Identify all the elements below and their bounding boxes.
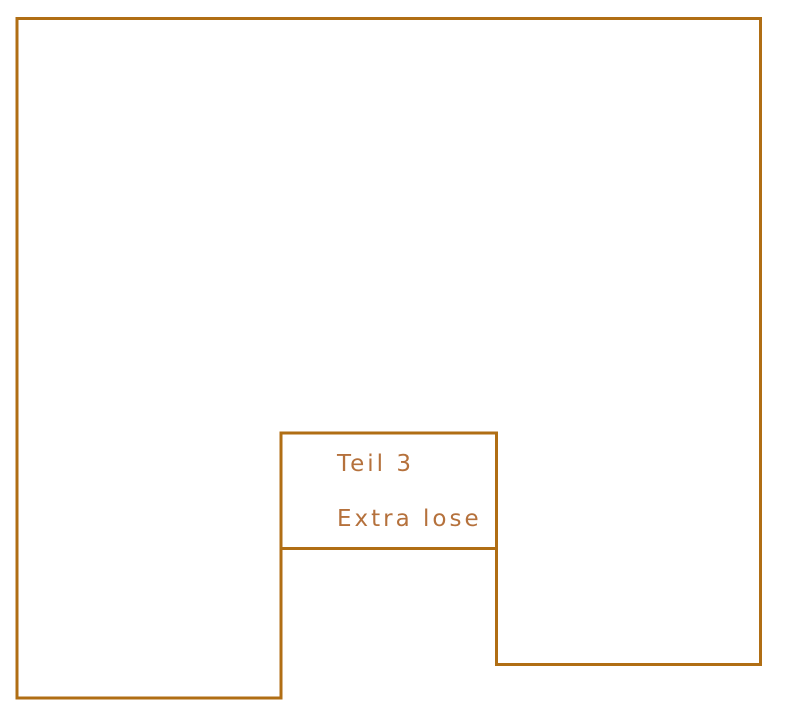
pattern-canvas: Teil 3 Extra lose [0,0,786,717]
piece-note-label: Extra lose [337,508,482,531]
pattern-drawing [0,0,786,717]
pattern-piece-outline [17,19,761,699]
piece-name-label: Teil 3 [337,453,414,476]
